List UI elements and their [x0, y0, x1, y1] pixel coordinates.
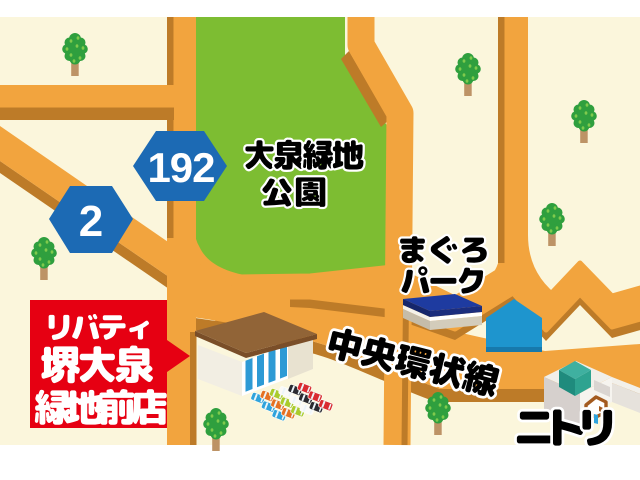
svg-text:2: 2: [79, 197, 103, 246]
svg-text:192: 192: [147, 144, 214, 191]
